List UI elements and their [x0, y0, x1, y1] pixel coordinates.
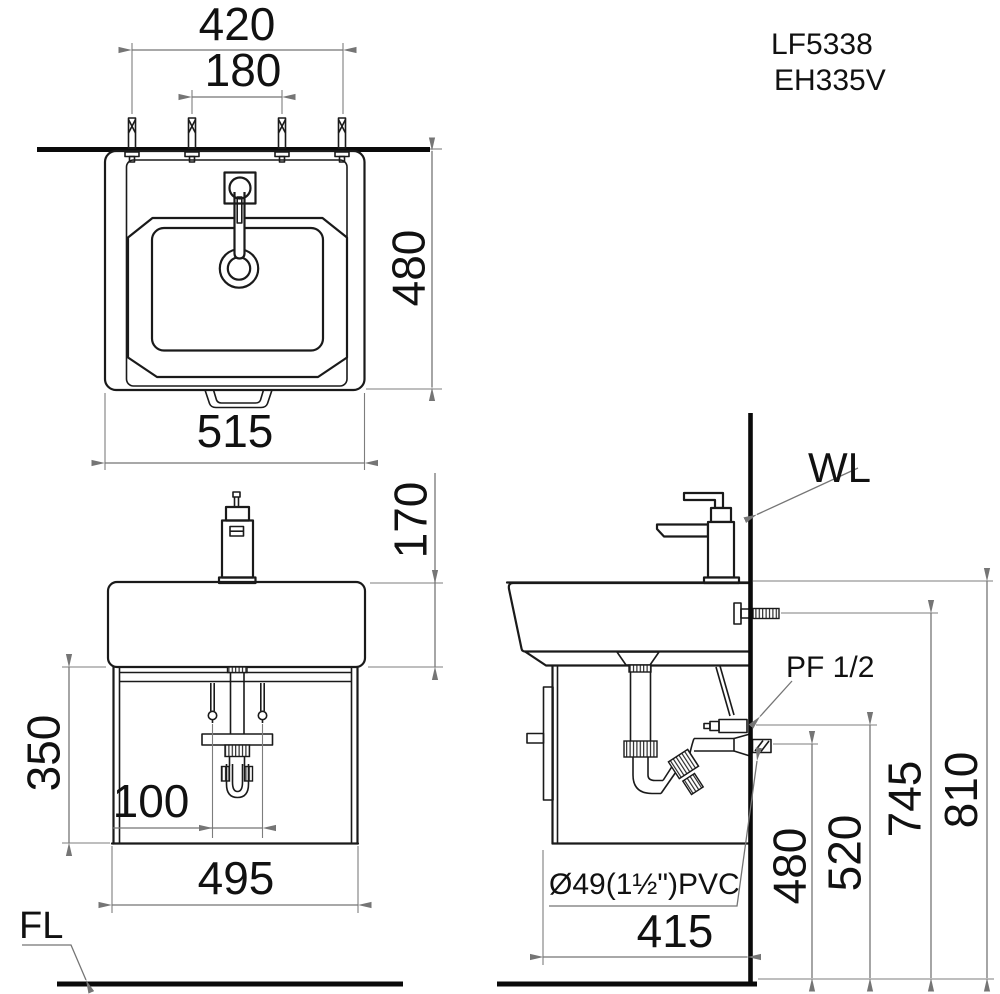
- supply-fitting-leader: [760, 681, 792, 717]
- dim-supply-outlet-height: 520: [819, 815, 871, 892]
- mount-bolt-4: [335, 118, 349, 162]
- dim-overall-width: 515: [197, 405, 274, 457]
- plan-dimensions: 420 180 480 515: [105, 0, 442, 470]
- basin-installation-drawing: 420 180 480 515: [0, 0, 1000, 994]
- model-codes: LF5338 EH335V: [771, 28, 886, 97]
- plan-overflow-inner: [214, 390, 264, 403]
- side-supply-valve: [704, 666, 747, 733]
- dim-basin-height: 170: [385, 482, 437, 559]
- dim-cabinet-depth: 415: [637, 905, 714, 957]
- technical-drawing-page: 420 180 480 515: [0, 0, 1000, 994]
- model-code-2: EH335V: [774, 64, 886, 97]
- floor-line-label: FL: [19, 905, 63, 947]
- dim-anchor-bolt-height: 745: [879, 761, 931, 838]
- dim-bolt-spacing: 420: [199, 0, 276, 50]
- dim-overall-depth: 480: [383, 230, 435, 307]
- plan-faucet-lever: [235, 192, 245, 259]
- mount-bolt-1: [125, 118, 139, 162]
- plan-view: 420 180 480 515: [37, 0, 442, 470]
- mount-bolt-2: [185, 118, 199, 162]
- plan-drain-inner: [228, 257, 250, 279]
- supply-fitting-label: PF 1/2: [786, 651, 874, 684]
- side-dimensions: 415 480 520 745 810: [543, 581, 994, 979]
- wall-line-label: WL: [808, 444, 871, 491]
- front-view: 170 350 100 495: [18, 473, 444, 913]
- front-faucet: [219, 492, 256, 583]
- mount-bolt-3: [275, 118, 289, 162]
- dim-hose-spacing: 100: [113, 775, 190, 827]
- dim-rim-height: 810: [935, 752, 987, 829]
- front-supply-hoses: [208, 683, 266, 723]
- side-basin: [507, 583, 750, 666]
- side-drain-trap: [617, 652, 771, 795]
- drain-pipe-label: Ø49(1½")PVC: [549, 868, 740, 901]
- floor-line-leader: [22, 945, 86, 980]
- dim-faucet-hole-spacing: 180: [205, 44, 282, 96]
- side-faucet: [657, 493, 739, 583]
- plan-basin-body: [105, 151, 365, 390]
- dim-cabinet-height: 350: [18, 715, 70, 792]
- model-code-1: LF5338: [771, 28, 873, 61]
- dim-cabinet-width: 495: [198, 852, 275, 904]
- front-basin-body: [108, 582, 365, 667]
- side-view: 415 480 520 745 810 WL PF 1/2 Ø49(1½")PV…: [507, 413, 994, 984]
- side-anchor-bolt: [734, 603, 779, 624]
- dim-drain-outlet-height: 480: [764, 828, 816, 905]
